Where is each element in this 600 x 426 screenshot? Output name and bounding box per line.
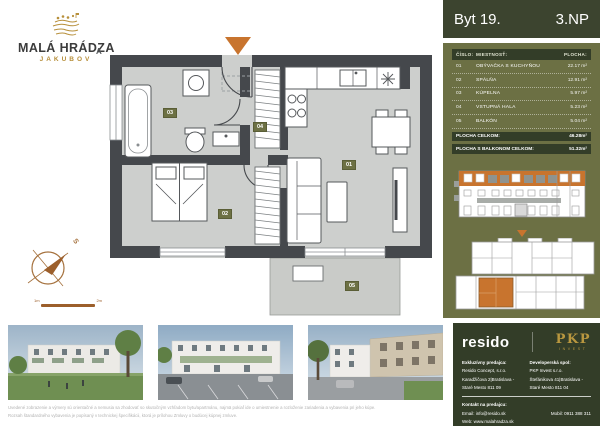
contact-mobile: Mobil: 0911 388 311 bbox=[551, 410, 591, 426]
disclaimer-line-2: Rozsah štandardného vybavenia je popísan… bbox=[8, 412, 446, 420]
total-value: 46.28m² bbox=[569, 134, 587, 139]
row-number: 04 bbox=[456, 105, 476, 110]
seller-line: Staré Mesto 811 09 bbox=[462, 384, 524, 392]
disclaimer: Uvedené zobrazenie a výmery sú orientačn… bbox=[8, 404, 446, 419]
building-elevation-diagram bbox=[452, 165, 591, 228]
row-area: 5.23 m² bbox=[570, 105, 587, 110]
table-row: 02 SPÁLŇA 12.91 m² bbox=[452, 74, 591, 88]
balcony-area bbox=[270, 258, 400, 315]
table-row: 03 KÚPELNA 5.97 m² bbox=[452, 88, 591, 102]
total-label: PLOCHA S BALKONOM CELKOM: bbox=[456, 147, 534, 152]
row-area: 12.91 m² bbox=[568, 78, 587, 83]
row-room: KÚPELNA bbox=[476, 91, 570, 96]
table-row: 05 BALKÓN 5.04 m² bbox=[452, 115, 591, 129]
row-room: VSTUPNÁ HALA bbox=[476, 105, 570, 110]
unit-info-panel: Byt 19. 3.NP ČÍSLO: MIESTNOSŤ: PLOCHA: 0… bbox=[443, 0, 600, 318]
row-room: SPÁLŇA bbox=[476, 78, 568, 83]
dining-set bbox=[372, 110, 410, 154]
scale-bar: 1m 2m bbox=[34, 296, 102, 312]
row-room: BALKÓN bbox=[476, 119, 570, 124]
col-number: ČÍSLO: bbox=[456, 52, 476, 57]
contact-info: Kontakt na predajcu: Email: info@resido.… bbox=[462, 401, 591, 426]
row-room: OBÝVAČKA S KUCHYŇOU bbox=[476, 64, 568, 69]
section-marker: A bbox=[96, 47, 102, 56]
disclaimer-line-1: Uvedené zobrazenie a výmery sú orientačn… bbox=[8, 404, 446, 412]
seller-line: Resido Concept, s.r.o. bbox=[462, 367, 524, 375]
total-label: PLOCHA CELKOM: bbox=[456, 134, 500, 139]
brand-logos: resido PKP INVEST bbox=[462, 330, 591, 354]
freezer-star-icon bbox=[381, 72, 395, 86]
room-label-02: 02 bbox=[218, 209, 232, 219]
developer-line: Staré Mesto 811 04 bbox=[530, 384, 592, 392]
col-room: MIESTNOSŤ: bbox=[476, 52, 564, 57]
row-area: 22.17 m² bbox=[568, 64, 587, 69]
footer-contact-panel: resido PKP INVEST Exkluzívny predajca: R… bbox=[453, 323, 600, 426]
contact-email: Email: info@resido.sk bbox=[462, 410, 514, 418]
developer-line: PKP Invest s.r.o. bbox=[530, 367, 592, 375]
row-number: 03 bbox=[456, 91, 476, 96]
row-area: 5.04 m² bbox=[570, 119, 587, 124]
compass-icon bbox=[20, 238, 84, 300]
property-flyer-page: { "colors": { "olive": "#6c7044", "dark_… bbox=[0, 0, 600, 426]
unit-floor: 3.NP bbox=[556, 11, 589, 28]
row-number: 01 bbox=[456, 64, 476, 69]
total-area-row: PLOCHA CELKOM: 46.28m² bbox=[452, 132, 591, 142]
room-label-03: 03 bbox=[163, 108, 177, 118]
room-label-04: 04 bbox=[253, 122, 267, 132]
unit-header: Byt 19. 3.NP bbox=[443, 0, 600, 38]
bed bbox=[152, 163, 207, 221]
floor-overview-diagram bbox=[452, 238, 591, 319]
scale-start-label: 1m bbox=[34, 298, 40, 303]
developer-heading: Developerská spol: bbox=[530, 359, 592, 367]
developer-line: Štefánikova 41|Bratislava - bbox=[530, 376, 592, 384]
scale-bar-line bbox=[41, 304, 95, 307]
pkp-invest-logo: PKP INVEST bbox=[556, 333, 591, 351]
developer-info: Developerská spol: PKP Invest s.r.o. Šte… bbox=[530, 359, 592, 392]
exterior-photo-3 bbox=[308, 325, 443, 400]
entrance-arrow-icon bbox=[225, 37, 251, 55]
room-label-05: 05 bbox=[345, 281, 359, 291]
pkp-logo-subtext: INVEST bbox=[556, 347, 591, 351]
footer-divider bbox=[462, 396, 591, 397]
table-row: 04 VSTUPNÁ HALA 5.23 m² bbox=[452, 101, 591, 115]
total-with-balcony-row: PLOCHA S BALKONOM CELKOM: 51.32m² bbox=[452, 144, 591, 154]
logo-divider bbox=[532, 332, 533, 352]
table-row: 01 OBÝVAČKA S KUCHYŇOU 22.17 m² bbox=[452, 60, 591, 74]
col-area: PLOCHA: bbox=[564, 52, 587, 57]
seller-info: Exkluzívny predajca: Resido Concept, s.r… bbox=[462, 359, 524, 392]
floor-plan-drawing bbox=[95, 28, 440, 328]
contact-heading: Kontakt na predajcu: bbox=[462, 401, 591, 409]
room-table-panel: ČÍSLO: MIESTNOSŤ: PLOCHA: 01 OBÝVAČKA S … bbox=[443, 43, 600, 318]
unit-number: Byt 19. bbox=[454, 11, 501, 28]
seller-line: Karadžičova 2|Bratislava - bbox=[462, 376, 524, 384]
floor-plan: A 01 02 03 04 05 bbox=[95, 28, 440, 328]
row-area: 5.97 m² bbox=[570, 91, 587, 96]
row-number: 05 bbox=[456, 119, 476, 124]
exterior-photo-1 bbox=[8, 325, 143, 400]
elevation-to-plan-arrow-icon bbox=[517, 230, 527, 237]
room-label-01: 01 bbox=[342, 160, 356, 170]
contact-web: Web: www.malahradza.sk bbox=[462, 418, 514, 426]
pkp-logo-text: PKP bbox=[556, 333, 591, 346]
exterior-photo-2 bbox=[158, 325, 293, 400]
row-number: 02 bbox=[456, 78, 476, 83]
total-value: 51.32m² bbox=[569, 147, 587, 152]
compass: S bbox=[20, 238, 84, 300]
room-table-header: ČÍSLO: MIESTNOSŤ: PLOCHA: bbox=[452, 49, 591, 60]
scale-end-label: 2m bbox=[96, 298, 102, 303]
resido-logo: resido bbox=[462, 334, 509, 351]
seller-heading: Exkluzívny predajca: bbox=[462, 359, 524, 367]
hills-sheep-logo-icon bbox=[51, 12, 81, 39]
